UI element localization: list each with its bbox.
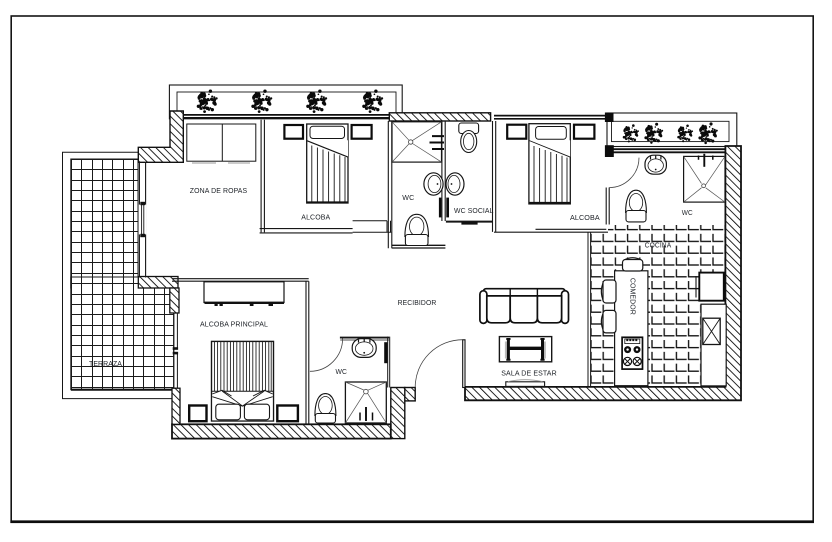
svg-text:ZONA DE ROPAS: ZONA DE ROPAS [190,187,248,195]
svg-text:SALA DE ESTAR: SALA DE ESTAR [501,370,557,378]
svg-text:ALCOBA: ALCOBA [570,214,600,222]
svg-text:ALCOBA PRINCIPAL: ALCOBA PRINCIPAL [200,320,268,328]
svg-text:COCINA: COCINA [645,242,672,250]
svg-text:WC: WC [682,209,693,217]
svg-text:TERRAZA: TERRAZA [89,360,122,368]
svg-text:RECIBIDOR: RECIBIDOR [398,299,437,307]
svg-text:ALCOBA: ALCOBA [301,214,330,222]
svg-text:WC SOCIAL: WC SOCIAL [454,207,494,215]
svg-text:COMEDOR: COMEDOR [629,278,637,315]
svg-text:WC: WC [402,194,414,202]
svg-text:WC: WC [336,368,348,376]
